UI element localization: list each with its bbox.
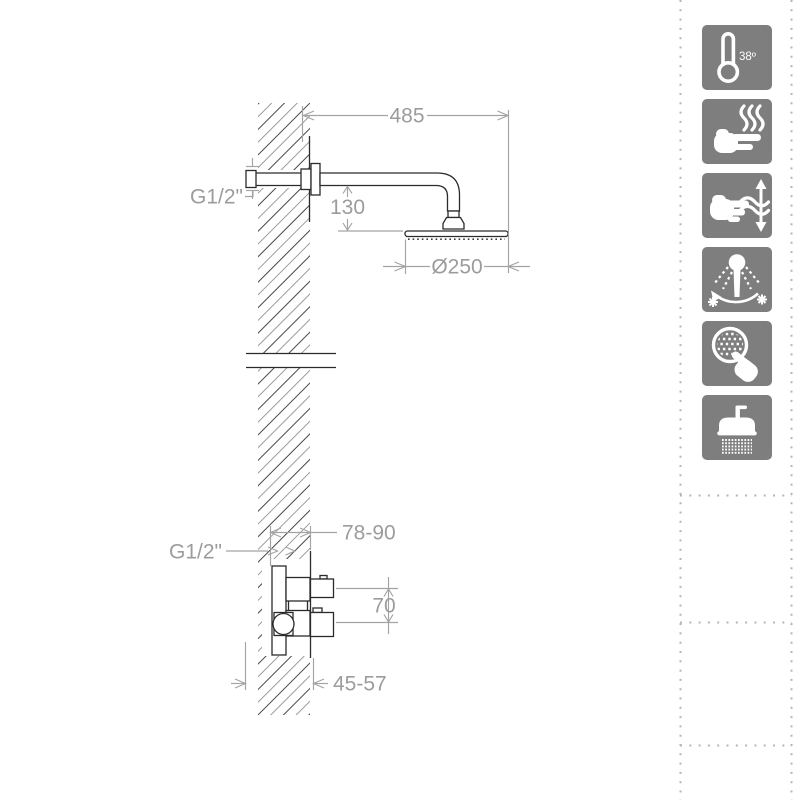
shower-head-disc	[405, 231, 508, 237]
shower-spec-sheet: 485 130 Ø250	[0, 0, 800, 800]
cold-snowflake-symbol	[757, 295, 767, 305]
nozzle-dots	[715, 334, 746, 354]
arm-nut	[301, 169, 311, 190]
valve-depth-label: 78-90	[342, 522, 396, 545]
head-ball-joint	[443, 218, 464, 230]
lever-stem	[734, 269, 741, 297]
valve-thread-label: G1/2"	[169, 541, 222, 564]
technical-drawing: 485 130 Ø250	[0, 0, 800, 800]
thermostat-38-icon: 38º	[702, 25, 772, 90]
rubbing-hand	[730, 350, 761, 385]
head-drop-label: 130	[330, 196, 365, 219]
easy-clean-spray-face-icon	[702, 321, 772, 386]
hot-water-hand-icon	[702, 99, 772, 164]
valve-lower-knob	[311, 613, 334, 637]
feature-icon-thermostat-38: 38º	[702, 25, 772, 90]
arm-wall-nipple	[246, 171, 256, 188]
pointing-hand	[714, 129, 761, 153]
shower-head-shape	[717, 406, 757, 436]
valve-upper-body	[286, 578, 310, 602]
arm-thread-label: G1/2"	[190, 186, 243, 209]
feature-icon-flow-control	[702, 173, 772, 238]
water-drop-grid	[722, 440, 752, 453]
outlet-spacing-label: 70	[372, 595, 395, 618]
feature-icon-rain-shower	[702, 395, 772, 460]
head-diameter-label: Ø250	[431, 256, 482, 279]
arm-escutcheon	[311, 164, 320, 196]
rain-shower-head-icon	[702, 395, 772, 460]
feature-icon-hot-water	[702, 99, 772, 164]
valve-projection-label: 45-57	[333, 673, 387, 696]
thermometer-bulb	[719, 63, 737, 81]
valve-upper-knob	[311, 579, 334, 598]
hot-symbol	[708, 297, 718, 307]
thermometer-stem	[723, 34, 733, 65]
valve-lower-tab	[313, 608, 322, 613]
flow-control-hand-icon	[702, 173, 772, 238]
lever-knob	[729, 254, 746, 271]
thermostat-temp-label: 38º	[739, 51, 757, 63]
arm-length-label: 485	[389, 105, 424, 128]
valve-round-control	[273, 614, 294, 635]
feature-icon-temperature-lever	[702, 247, 772, 312]
valve-back-plate	[272, 566, 286, 655]
head-connector-nut	[448, 211, 459, 218]
feature-icon-easy-clean	[702, 321, 772, 386]
steam-waves	[741, 106, 763, 130]
temperature-lever-icon	[702, 247, 772, 312]
